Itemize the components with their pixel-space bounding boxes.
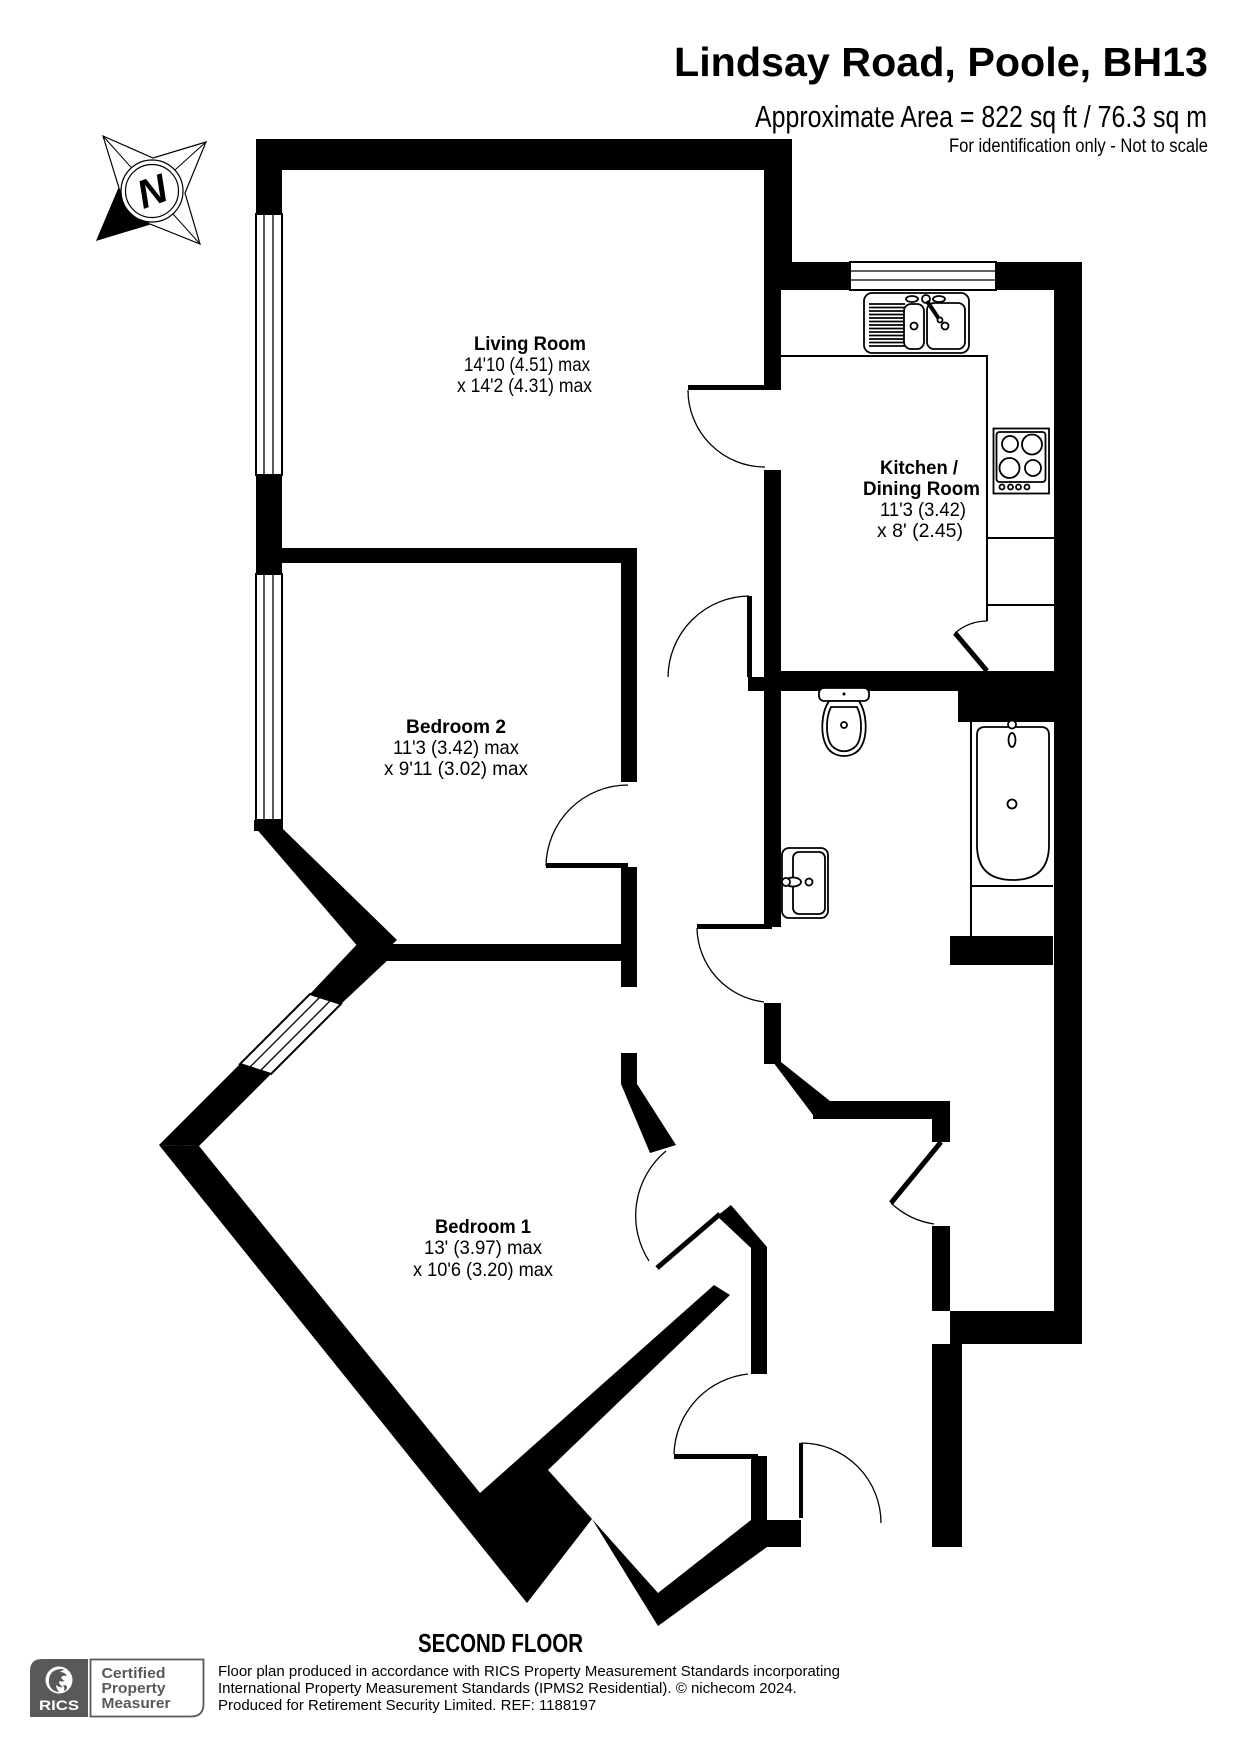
svg-text:International Property Measure: International Property Measurement Stand… bbox=[218, 1680, 797, 1697]
svg-text:Floor plan produced in accorda: Floor plan produced in accordance with R… bbox=[218, 1663, 840, 1680]
svg-text:Approximate Area = 822 sq ft /: Approximate Area = 822 sq ft / 76.3 sq m bbox=[755, 99, 1207, 134]
svg-text:Measurer: Measurer bbox=[102, 1695, 171, 1712]
svg-text:Bedroom 1: Bedroom 1 bbox=[435, 1216, 531, 1238]
svg-text:Produced for Retirement Securi: Produced for Retirement Security Limited… bbox=[218, 1697, 596, 1714]
svg-text:Kitchen /: Kitchen / bbox=[880, 457, 959, 479]
svg-text:Dining Room: Dining Room bbox=[863, 478, 980, 500]
svg-text:Bedroom 2: Bedroom 2 bbox=[406, 716, 506, 738]
svg-text:x 8' (2.45): x 8' (2.45) bbox=[877, 520, 963, 542]
svg-text:Living Room: Living Room bbox=[474, 333, 586, 355]
svg-text:13' (3.97) max: 13' (3.97) max bbox=[424, 1237, 542, 1259]
svg-text:x 10'6 (3.20) max: x 10'6 (3.20) max bbox=[413, 1259, 553, 1281]
svg-text:SECOND FLOOR: SECOND FLOOR bbox=[418, 1628, 583, 1658]
svg-text:x 9'11 (3.02) max: x 9'11 (3.02) max bbox=[384, 758, 528, 780]
svg-text:RICS: RICS bbox=[39, 1697, 79, 1713]
svg-text:11'3 (3.42): 11'3 (3.42) bbox=[880, 499, 966, 521]
svg-text:11'3 (3.42) max: 11'3 (3.42) max bbox=[393, 737, 519, 759]
svg-text:For identification only - Not: For identification only - Not to scale bbox=[949, 135, 1208, 157]
svg-text:Lindsay Road, Poole, BH13: Lindsay Road, Poole, BH13 bbox=[674, 39, 1208, 85]
svg-text:x 14'2 (4.31) max: x 14'2 (4.31) max bbox=[457, 375, 592, 397]
svg-text:14'10 (4.51) max: 14'10 (4.51) max bbox=[464, 354, 590, 376]
